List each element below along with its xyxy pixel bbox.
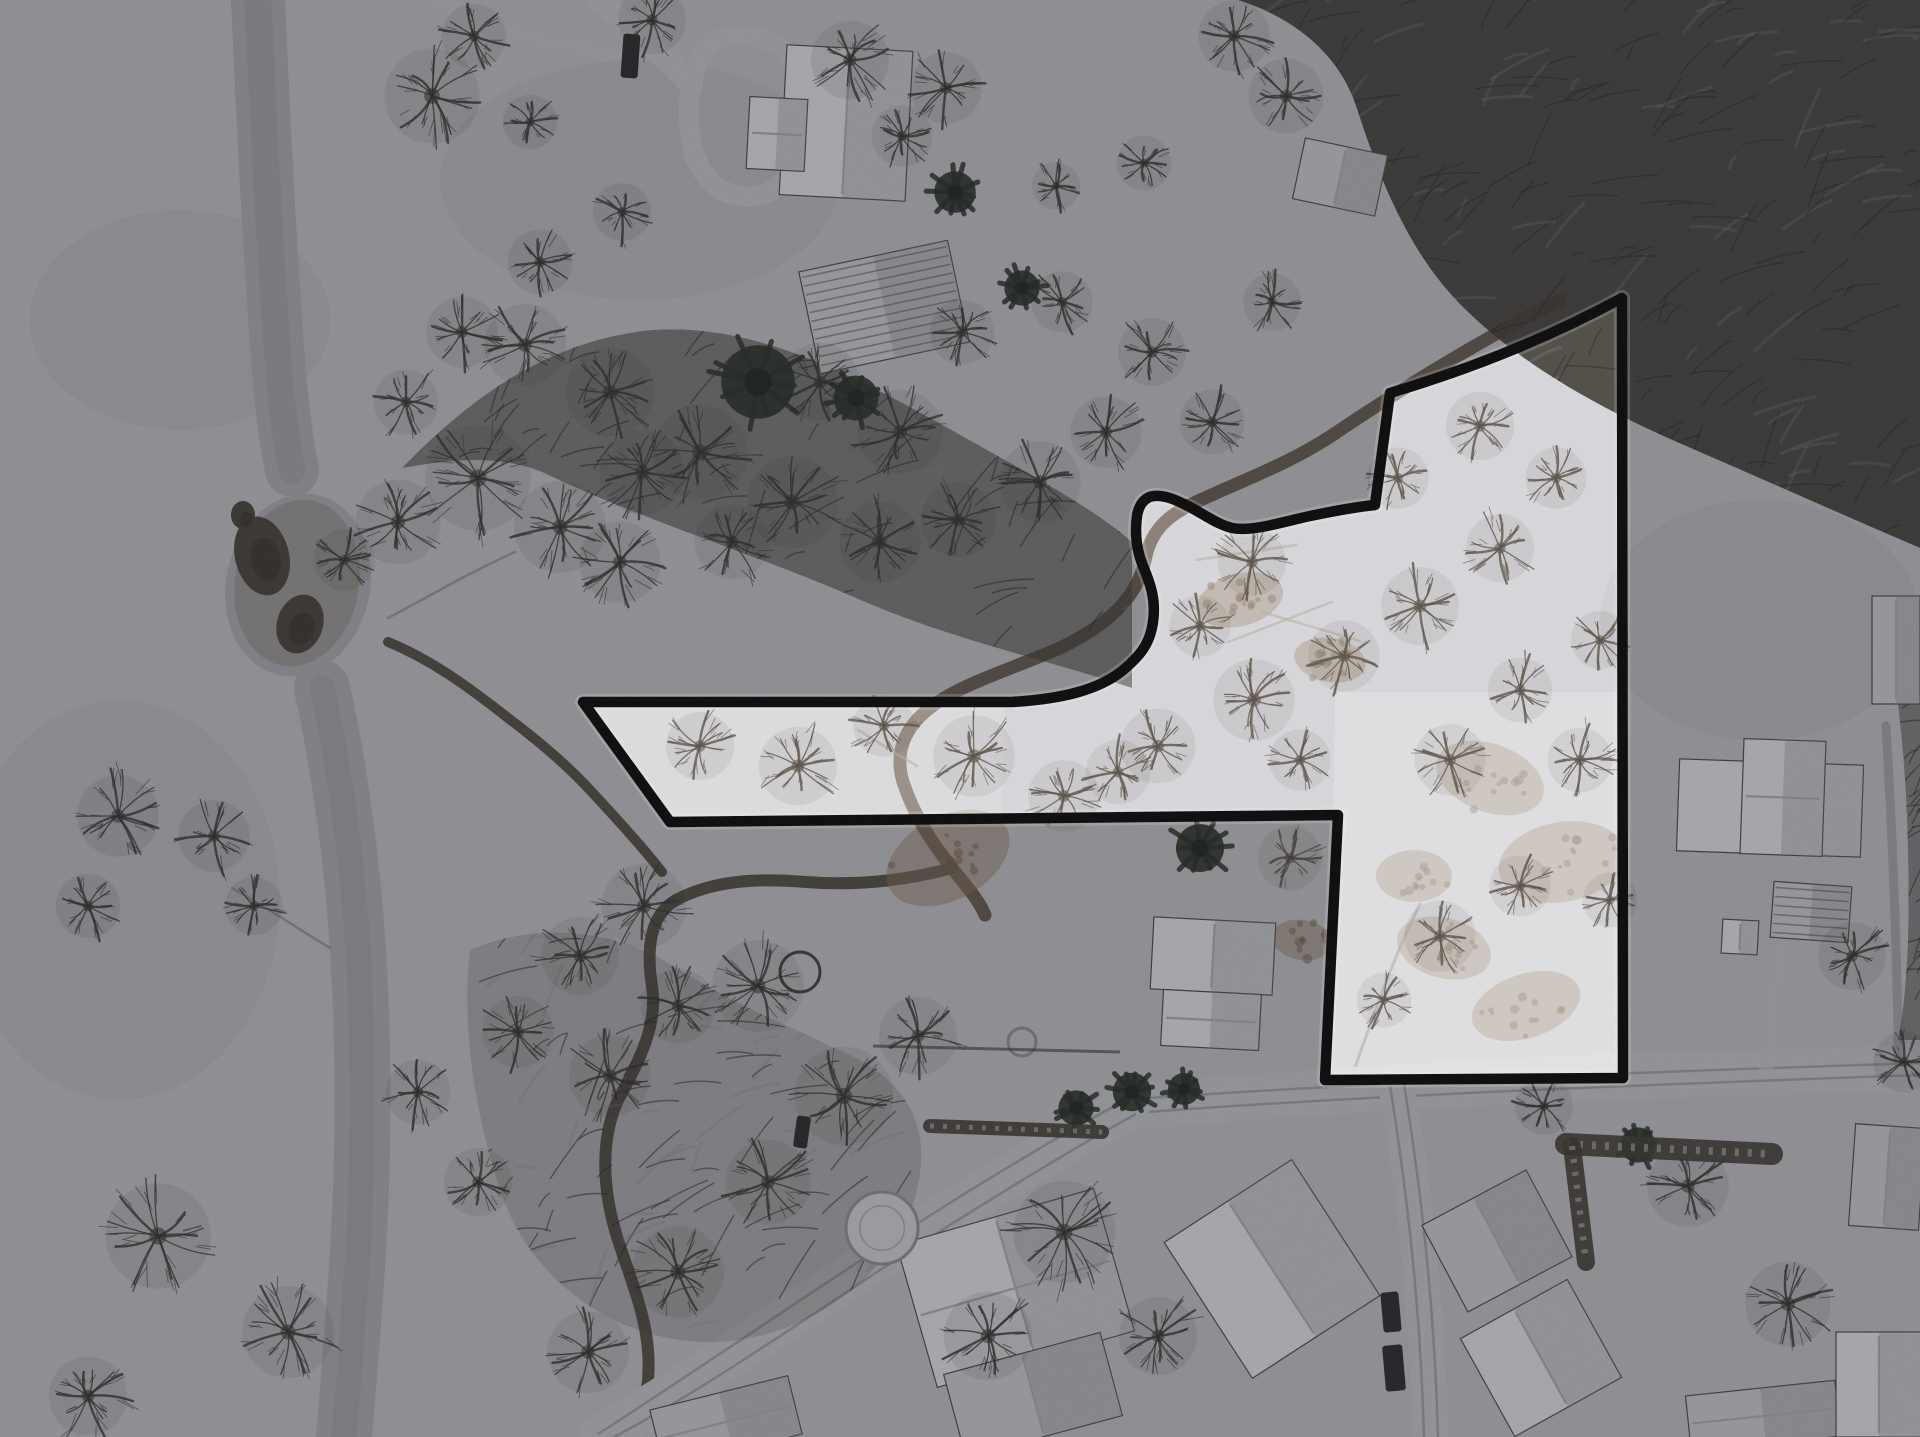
overlay-layer xyxy=(0,0,1920,1437)
photo-grain xyxy=(0,0,1920,1437)
aerial-photo xyxy=(0,0,1920,1437)
aerial-scene-svg xyxy=(0,0,1920,1437)
